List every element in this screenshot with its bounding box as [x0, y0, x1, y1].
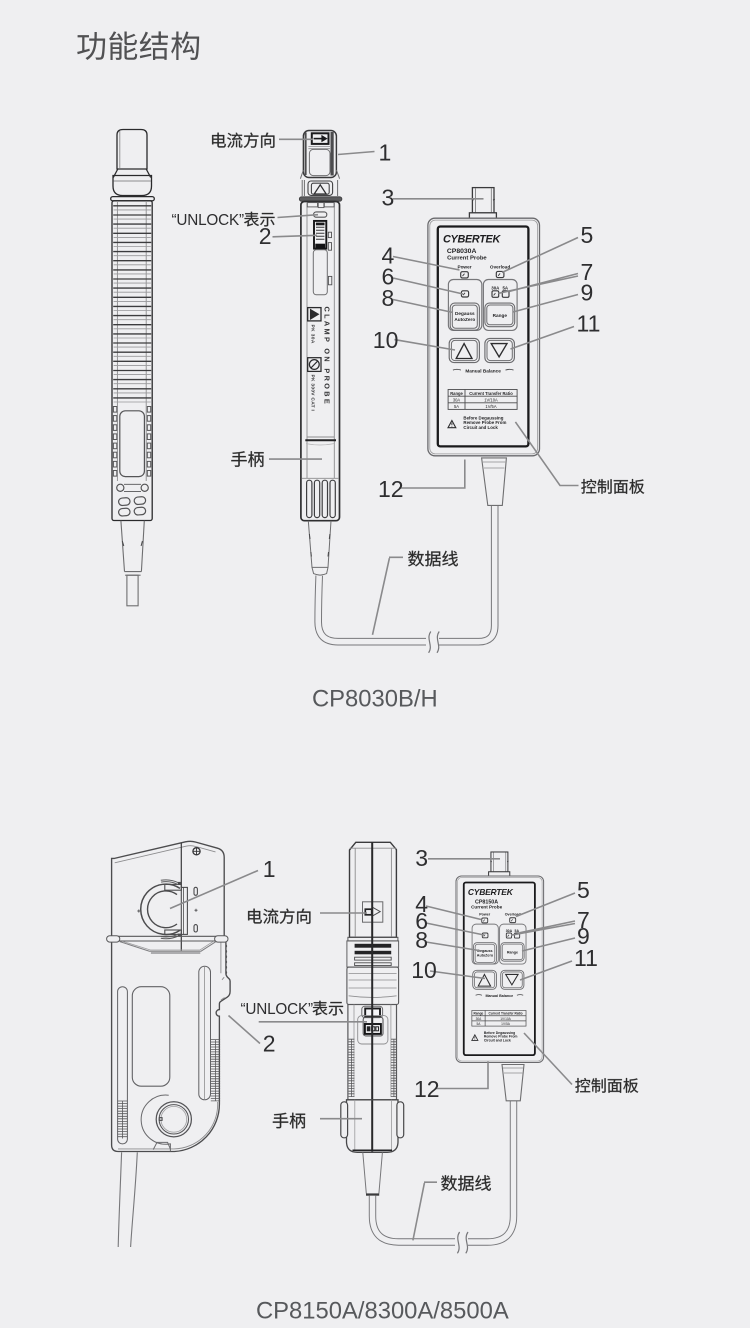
svg-text:CP8030B/H: CP8030B/H [312, 686, 438, 713]
svg-text:11: 11 [577, 311, 601, 337]
svg-text:8: 8 [415, 927, 428, 953]
svg-text:2: 2 [263, 1031, 276, 1057]
svg-text:12: 12 [414, 1076, 440, 1102]
svg-text:PK 300V CAT I: PK 300V CAT I [309, 375, 315, 412]
svg-text:10: 10 [373, 327, 399, 353]
svg-text:3: 3 [382, 185, 395, 211]
svg-text:CP8150A/8300A/8500A: CP8150A/8300A/8500A [256, 1298, 509, 1325]
svg-text:PK 30A: PK 30A [309, 325, 315, 344]
svg-text:1: 1 [263, 856, 276, 882]
svg-text:12: 12 [378, 476, 404, 502]
svg-text:1: 1 [379, 140, 392, 166]
svg-text:10: 10 [411, 957, 437, 983]
svg-text:11: 11 [574, 945, 598, 971]
svg-text:5: 5 [581, 222, 594, 248]
svg-text:CP8150A: CP8150A [475, 899, 498, 905]
svg-text:CP8030A: CP8030A [447, 248, 477, 255]
svg-text:8: 8 [382, 285, 395, 311]
svg-text:9: 9 [581, 280, 594, 306]
svg-text:2: 2 [259, 223, 272, 249]
svg-text:“UNLOCK”: “UNLOCK” [241, 1001, 313, 1018]
svg-text:3: 3 [415, 845, 428, 871]
svg-text:5: 5 [577, 877, 590, 903]
svg-text:“UNLOCK”: “UNLOCK” [172, 212, 244, 229]
